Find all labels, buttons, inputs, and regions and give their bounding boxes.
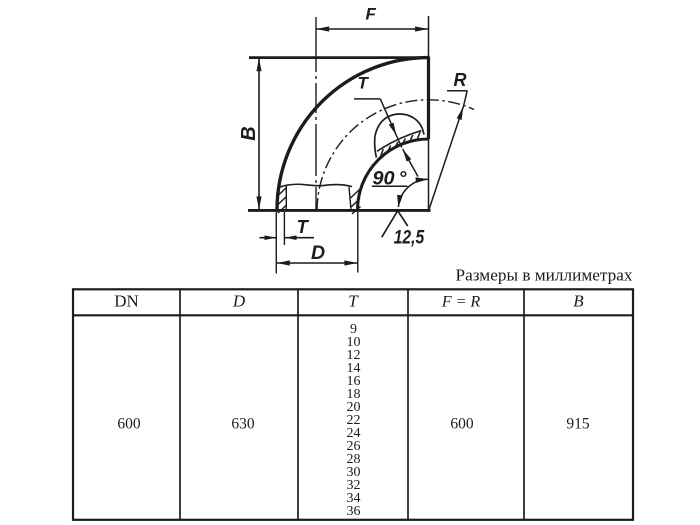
svg-text:600: 600 <box>450 416 474 433</box>
svg-text:D: D <box>232 292 246 311</box>
svg-text:F = R: F = R <box>441 294 481 311</box>
svg-text:T: T <box>358 74 370 93</box>
svg-text:B: B <box>238 126 260 140</box>
svg-text:DN: DN <box>114 292 139 311</box>
svg-text:T: T <box>297 216 310 237</box>
svg-text:Размеры в миллиметрах: Размеры в миллиметрах <box>456 266 633 285</box>
svg-text:D: D <box>311 242 325 264</box>
svg-text:B: B <box>573 292 584 311</box>
svg-text:12,5: 12,5 <box>394 227 425 248</box>
svg-text:915: 915 <box>566 416 590 433</box>
svg-text:R: R <box>454 70 467 90</box>
svg-text:630: 630 <box>231 416 255 433</box>
svg-text:T: T <box>348 292 359 311</box>
svg-text:36: 36 <box>347 504 361 519</box>
svg-text:F: F <box>366 4 377 23</box>
svg-text:600: 600 <box>117 416 141 433</box>
